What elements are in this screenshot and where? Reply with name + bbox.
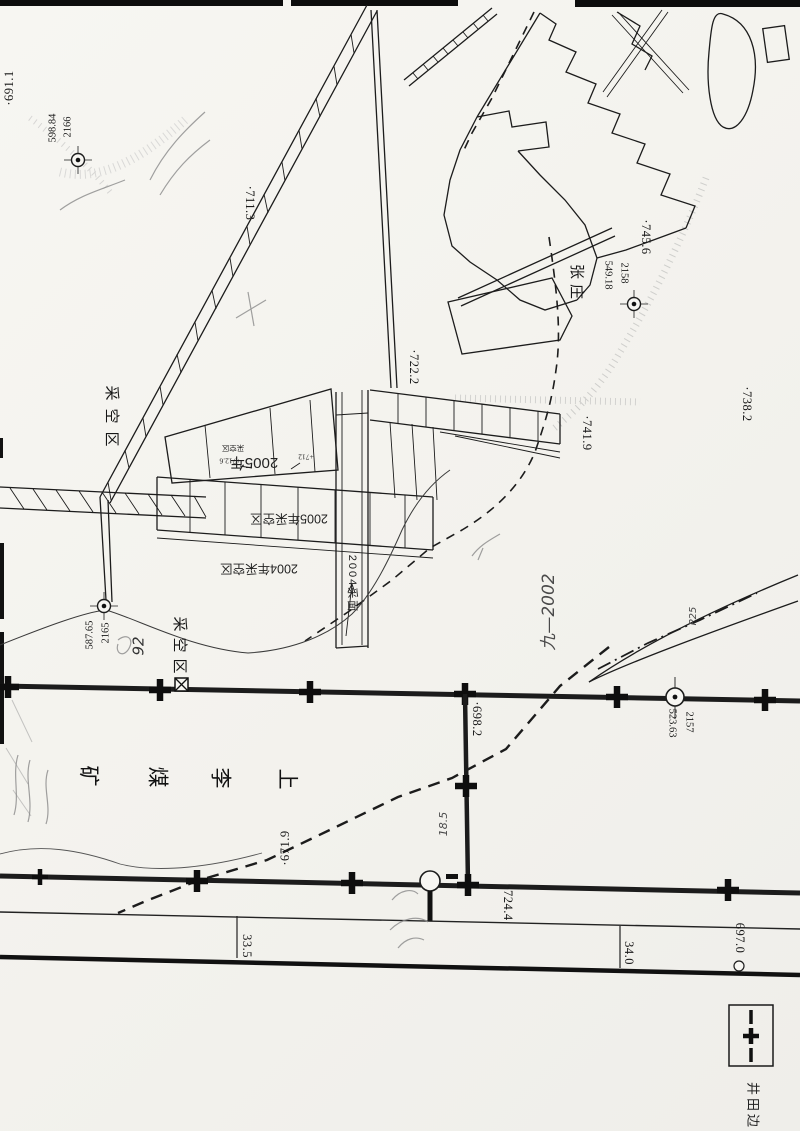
small-circle-marker: [734, 961, 744, 971]
stipple-bands: [6, 118, 706, 816]
dash-dot-line: [598, 593, 757, 669]
mine-name-char-shang: 上: [275, 769, 298, 790]
distance-33-5: 33.5: [240, 934, 254, 958]
labels-spot-heights: ·691.1 ·711.3 ·722.2 ·741.9 ·738.2 ·745.…: [2, 70, 754, 965]
mine-name-char-mei: 煤: [145, 767, 168, 788]
mine-name-char-kuang: 矿: [76, 766, 99, 787]
survey-2165-elevation: 587.65: [84, 621, 95, 650]
spot-height-698: ·698.2: [470, 701, 484, 736]
survey-2166-number: 2166: [62, 117, 73, 138]
survey-2157-number: 2157: [684, 712, 695, 733]
labels-place-names: 张庄 采空区 采空区 上 李 煤 矿: [76, 264, 586, 790]
spot-height-745: ·745.6: [639, 219, 653, 254]
legend-boundary-symbol: [743, 1010, 759, 1062]
ladder-secondary: [404, 8, 689, 97]
survey-points: [64, 146, 648, 620]
pencil-annotations: 九—2002 P25 18.5 92: [14, 112, 699, 948]
ladder-horizontal: [0, 487, 206, 518]
pencil-18-5-note: 18.5: [437, 812, 450, 837]
spot-height-711: ·711.3: [243, 186, 257, 221]
goaf-2004-note: 2004年采空区: [220, 562, 298, 576]
spot-712-6-note: +712.6: [219, 456, 240, 465]
roadway-double-line: [371, 10, 397, 388]
spot-height-741: ·741.9: [580, 415, 594, 450]
pencil-92-note: 92: [130, 636, 148, 655]
crossing-paths: [603, 10, 689, 97]
goaf-limit-dashed: [118, 647, 609, 913]
crossed-square-marker: [175, 678, 188, 691]
survey-2165-number: 2165: [100, 623, 111, 644]
mine-name-char-li: 李: [208, 768, 231, 789]
goaf-2005-note: 2005年采空区: [250, 512, 328, 526]
survey-point-2166-symbol: [64, 146, 92, 174]
legend-label: 井田边: [746, 1082, 761, 1130]
village-label: 张庄: [568, 264, 586, 304]
spot-712-note: +712: [298, 452, 314, 461]
spot-height-691: ·691.1: [2, 70, 16, 105]
distance-34-0: 34.0: [622, 941, 636, 965]
survey-2158-number: 2158: [619, 263, 630, 284]
goaf-label-lower: 采空区: [171, 616, 188, 679]
pencil-p25-note: P25: [688, 607, 699, 626]
boundary-upper: [0, 676, 800, 719]
spot-height-724: ·724.4: [501, 885, 515, 921]
spot-height-722: ·722.2: [407, 349, 421, 384]
spot-height-697: 697.0: [733, 923, 747, 954]
stream-outline: [589, 575, 798, 682]
shaft-circle: [420, 871, 440, 921]
spot-height-671: ·671.9: [278, 830, 292, 865]
village-zhangzhuang-outlines: [444, 12, 789, 354]
survey-point-2165-symbol: [90, 592, 118, 620]
survey-2166-elevation: 598.84: [47, 113, 58, 143]
survey-2158-elevation: 549.18: [603, 261, 614, 290]
map-canvas: ·691.1 ·711.3 ·722.2 ·741.9 ·738.2 ·745.…: [0, 0, 800, 1131]
goaf-label-upper: 采空区: [103, 385, 120, 454]
goaf-small-note: 采空区: [221, 443, 244, 453]
scan-border: [0, 0, 800, 744]
legend: 井田边: [729, 1005, 773, 1130]
section-lines: [0, 912, 800, 975]
survey-2157-elevation: 523.63: [667, 709, 678, 738]
survey-point-2158-symbol: [620, 290, 648, 318]
pencil-scribbles: [14, 112, 500, 948]
pencil-period-note: 九—2002: [539, 573, 559, 650]
spot-height-738: ·738.2: [740, 386, 754, 421]
scanned-mine-plan: ·691.1 ·711.3 ·722.2 ·741.9 ·738.2 ·745.…: [0, 0, 800, 1131]
face-2004-note: 2004采面: [346, 555, 359, 613]
